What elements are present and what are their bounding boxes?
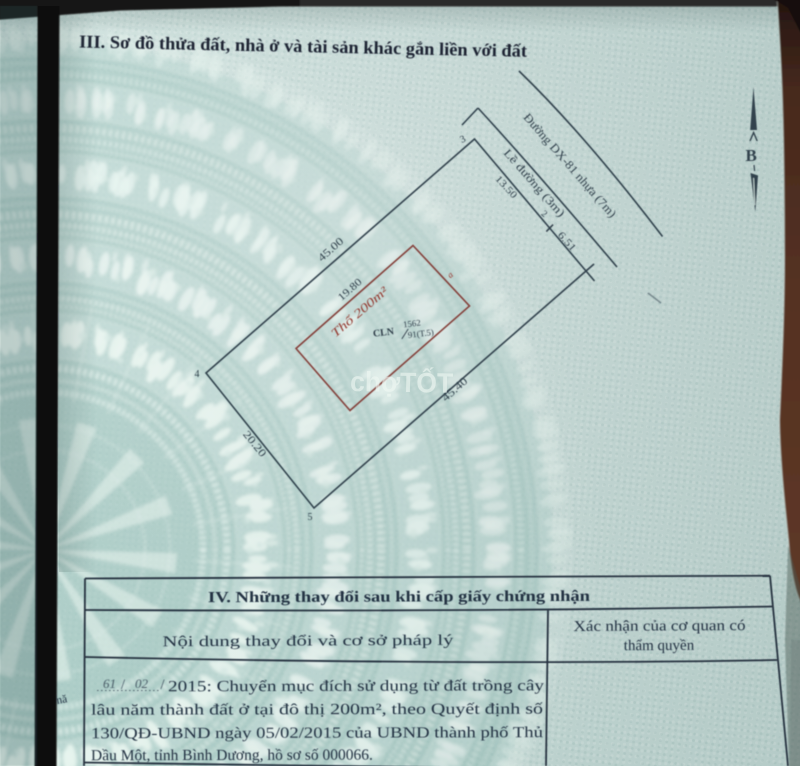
svg-text:B: B bbox=[746, 146, 757, 165]
svg-text:lâu năm thành đất ở tại đô thị: lâu năm thành đất ở tại đô thị 200m², th… bbox=[91, 701, 543, 719]
svg-text:Nội dung thay đổi và cơ sở phá: Nội dung thay đổi và cơ sở pháp lý bbox=[162, 633, 454, 651]
svg-text:130/QĐ-UBND ngày 05/02/2015 củ: 130/QĐ-UBND ngày 05/02/2015 của UBND thà… bbox=[91, 724, 543, 742]
svg-text:nă: nă bbox=[55, 693, 68, 707]
svg-text:1562: 1562 bbox=[403, 317, 422, 329]
svg-text:IV. Những thay đổi sau khi cấp: IV. Những thay đổi sau khi cấp giấy chứn… bbox=[208, 588, 591, 606]
svg-text:Dầu Một, tỉnh Bình Dương, hồ s: Dầu Một, tỉnh Bình Dương, hồ sơ số 00006… bbox=[91, 747, 373, 765]
svg-text:thẩm quyền: thẩm quyền bbox=[624, 638, 695, 654]
svg-text:61: 61 bbox=[103, 676, 116, 691]
svg-text:chợTỐT: chợTỐT bbox=[350, 365, 454, 399]
svg-text:Xác nhận của cơ quan có: Xác nhận của cơ quan có bbox=[573, 618, 745, 635]
svg-text:5: 5 bbox=[308, 512, 313, 523]
svg-text:02: 02 bbox=[135, 676, 149, 691]
svg-text:2015: Chuyển mục đích sử dụng: 2015: Chuyển mục đích sử dụng từ đất trồ… bbox=[168, 677, 544, 695]
svg-text:4: 4 bbox=[195, 369, 200, 380]
